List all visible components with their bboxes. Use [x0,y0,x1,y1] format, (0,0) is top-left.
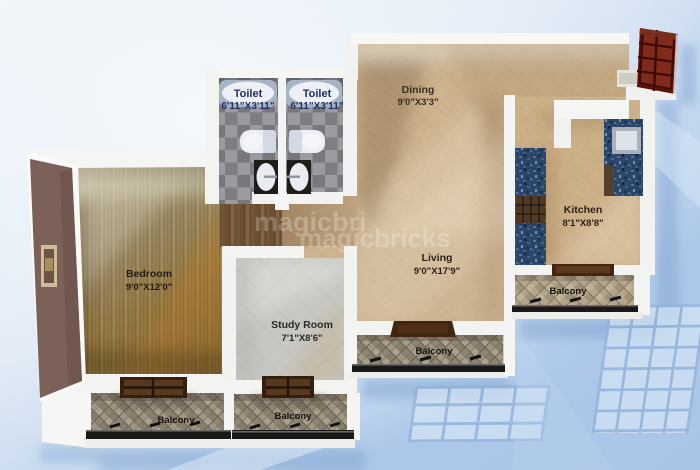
svg-text:Living: Living [422,252,453,264]
svg-text:9'0"X12'0": 9'0"X12'0" [126,282,172,293]
svg-text:magicbricks: magicbricks [299,223,451,253]
svg-text:Balcony: Balcony [550,286,588,297]
svg-text:7'1"X8'6": 7'1"X8'6" [282,333,323,344]
svg-text:9'0"X17'9": 9'0"X17'9" [414,266,460,277]
svg-text:6'11"X3'11": 6'11"X3'11" [221,101,274,112]
svg-text:Toilet: Toilet [234,88,263,100]
svg-text:Balcony: Balcony [416,346,454,357]
svg-text:Bedroom: Bedroom [126,268,172,280]
svg-text:Dining: Dining [402,84,435,96]
svg-text:9'0"X3'3": 9'0"X3'3" [398,97,439,108]
svg-text:Balcony: Balcony [275,411,313,422]
svg-text:8'1"X8'8": 8'1"X8'8" [563,218,604,229]
svg-text:Study Room: Study Room [271,319,333,331]
svg-text:Balcony: Balcony [158,415,196,426]
svg-text:6'11"X3'11": 6'11"X3'11" [290,101,343,112]
svg-text:Toilet: Toilet [303,88,332,100]
svg-text:Kitchen: Kitchen [564,204,603,216]
